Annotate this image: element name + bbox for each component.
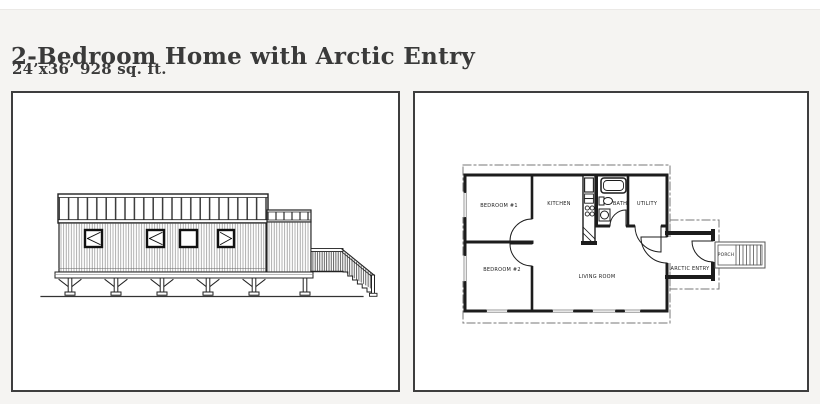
- post: [300, 278, 310, 295]
- room-label-utility: UTILITY: [637, 201, 658, 207]
- room-label-bedroom-2: BEDROOM #2: [483, 267, 521, 273]
- window-3: [180, 230, 197, 247]
- room-label-bath: BATH: [613, 201, 627, 207]
- post: [197, 278, 219, 295]
- window-mark: [463, 193, 468, 217]
- page-subtitle: 24’x36’ 928 sq. ft.: [12, 60, 167, 78]
- post: [151, 278, 173, 295]
- room-label-porch: PORCH: [718, 252, 735, 258]
- room-label-kitchen: KITCHEN: [547, 201, 570, 207]
- room-label-bedroom-1: BEDROOM #1: [480, 203, 518, 209]
- window-mark: [463, 256, 468, 281]
- floor-plan-drawing: BEDROOM #1 KITCHEN BATH UTILITY BEDROOM …: [415, 93, 807, 390]
- floor-skirt: [55, 272, 313, 278]
- floor-plan-panel: BEDROOM #1 KITCHEN BATH UTILITY BEDROOM …: [413, 91, 809, 392]
- window-1: [85, 230, 102, 247]
- kitchen-fixtures: [581, 176, 597, 246]
- counter-end: [581, 241, 597, 245]
- elevation-drawing: [13, 93, 398, 390]
- post: [105, 278, 127, 295]
- post: [59, 278, 81, 295]
- main-fascia-band: [58, 194, 268, 223]
- room-label-arctic-entry: ARCTIC ENTRY: [671, 266, 711, 272]
- post: [243, 278, 265, 295]
- window-4: [218, 230, 234, 247]
- entry-fascia-band: [267, 210, 311, 222]
- window-mark: [553, 309, 573, 314]
- window-mark: [593, 309, 615, 314]
- entry-wall-siding: [267, 222, 311, 272]
- window-mark: [625, 309, 640, 314]
- top-strip: [0, 0, 820, 10]
- porch-railing: [311, 249, 343, 272]
- support-posts: [59, 278, 310, 295]
- stairs: [342, 249, 377, 296]
- fridge: [585, 178, 594, 192]
- window-2: [147, 230, 164, 247]
- room-label-living-room: LIVING ROOM: [579, 274, 616, 280]
- window-mark: [487, 309, 507, 314]
- elevation-panel: [11, 91, 400, 392]
